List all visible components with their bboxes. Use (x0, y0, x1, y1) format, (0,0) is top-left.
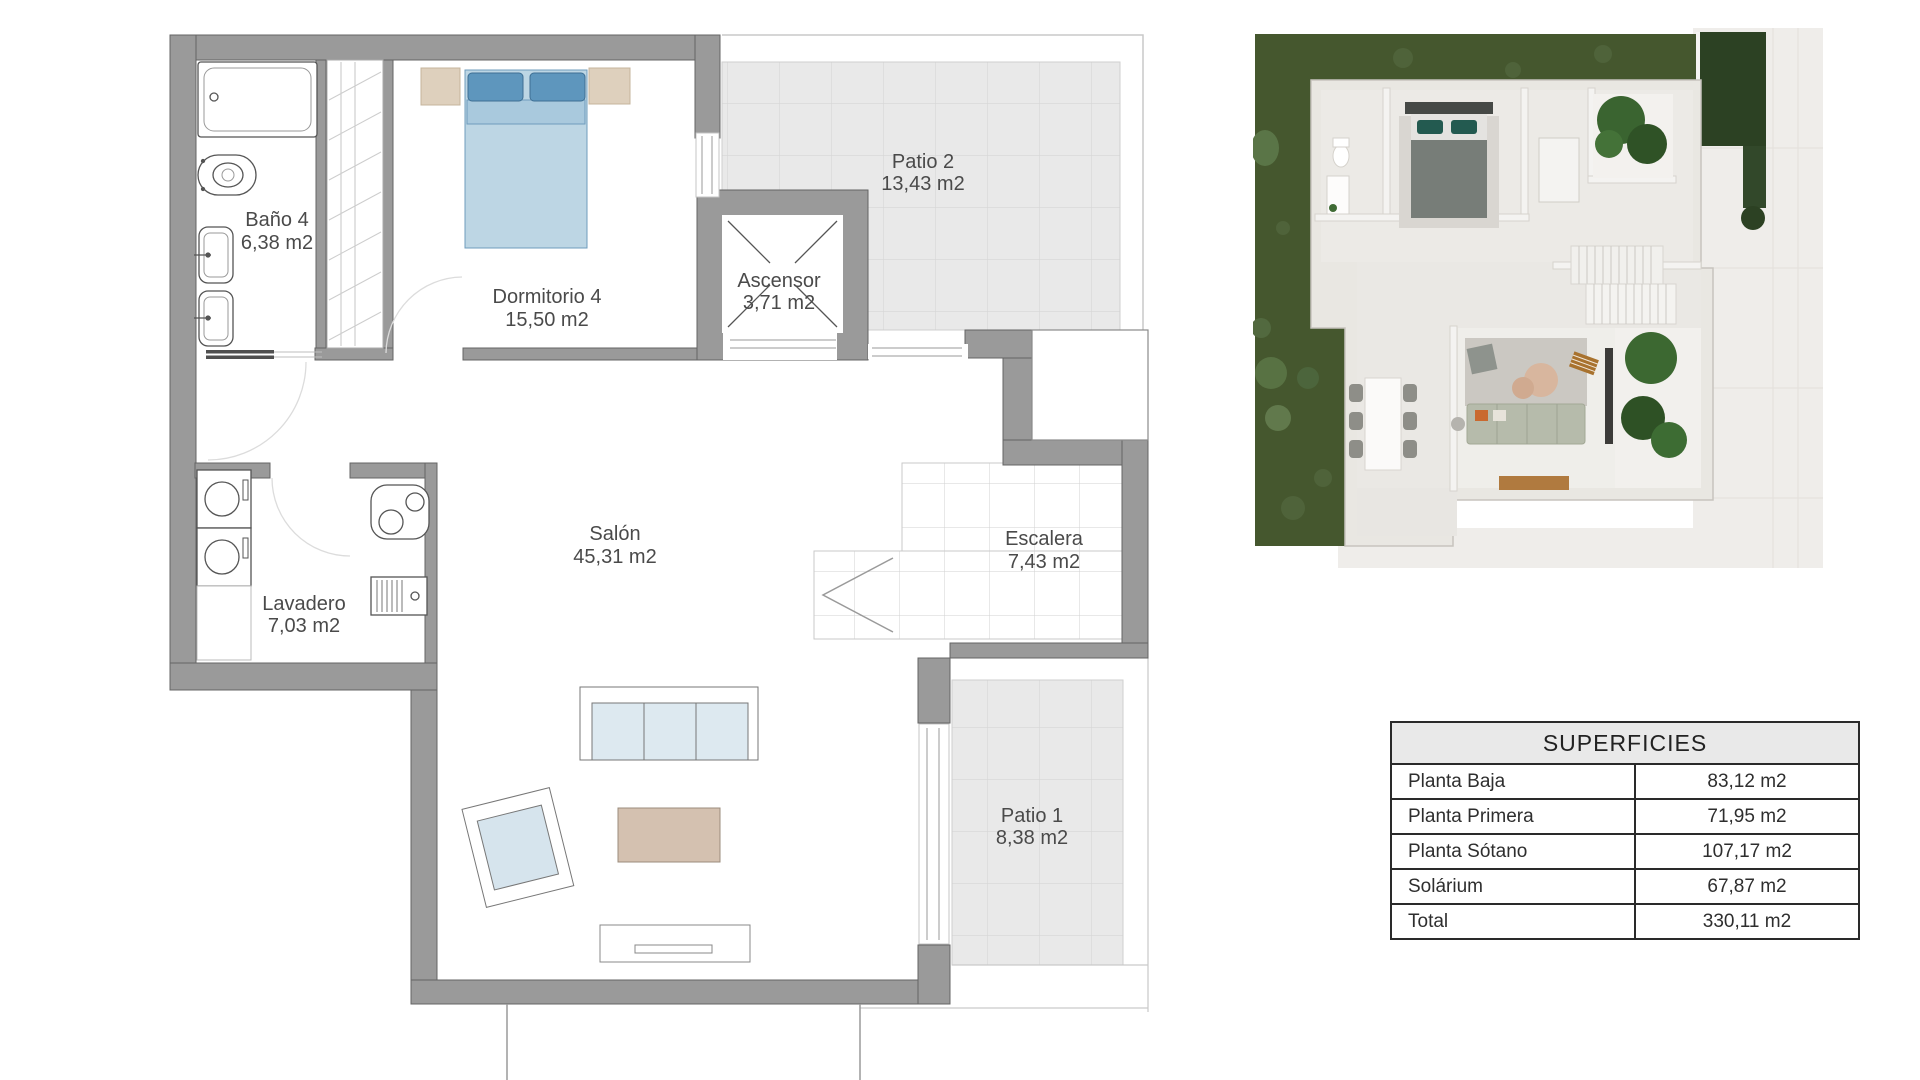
room-area-salon: 45,31 m2 (573, 546, 656, 568)
row-value: 330,11 m2 (1635, 904, 1859, 939)
room-label-escalera: Escalera (1005, 528, 1084, 550)
plot-boundary-lines (507, 1004, 860, 1080)
tv-stand (600, 925, 750, 962)
table-row: Planta Sótano 107,17 m2 (1391, 834, 1859, 869)
row-label: Planta Sótano (1391, 834, 1635, 869)
stairs-3d (1571, 246, 1676, 324)
room-area-ascensor: 3,71 m2 (743, 292, 815, 314)
row-label: Planta Primera (1391, 799, 1635, 834)
room-area-escalera: 7,43 m2 (1008, 551, 1080, 573)
room-label-ascensor: Ascensor (737, 270, 821, 292)
sink (194, 291, 233, 346)
counter (197, 586, 251, 660)
table-row: Planta Baja 83,12 m2 (1391, 764, 1859, 799)
row-value: 71,95 m2 (1635, 799, 1859, 834)
surfaces-table-title: SUPERFICIES (1391, 722, 1859, 764)
laundry-sink (371, 577, 427, 615)
nightstand (589, 68, 630, 104)
dining-set (1349, 378, 1417, 470)
room-area-dormitorio: 15,50 m2 (505, 309, 588, 331)
row-label: Total (1391, 904, 1635, 939)
bathroom-fixtures (194, 62, 317, 346)
washing-machine (197, 470, 251, 528)
room-label-salon: Salón (589, 523, 640, 545)
table-row: Total 330,11 m2 (1391, 904, 1859, 939)
washing-machine (197, 528, 251, 586)
nightstand (421, 68, 460, 105)
room-label-patio1: Patio 1 (1001, 805, 1063, 827)
bathtub (198, 62, 317, 137)
toilet (198, 155, 256, 195)
row-label: Planta Baja (1391, 764, 1635, 799)
row-value: 107,17 m2 (1635, 834, 1859, 869)
room-label-patio2: Patio 2 (892, 151, 954, 173)
sink (194, 227, 233, 283)
patio-plants-top (1593, 94, 1673, 178)
terrace-plants (1615, 328, 1701, 488)
armchair (462, 788, 574, 908)
room-area-bano: 6,38 m2 (241, 232, 313, 254)
bed (465, 70, 587, 248)
room-area-patio2: 13,43 m2 (881, 173, 964, 195)
room-label-lavadero: Lavadero (262, 593, 345, 615)
room-label-dormitorio: Dormitorio 4 (493, 286, 602, 308)
coffee-table (618, 808, 720, 862)
room-area-lavadero: 7,03 m2 (268, 615, 340, 637)
surfaces-table: SUPERFICIES Planta Baja 83,12 m2 Planta … (1390, 721, 1860, 940)
sofa (580, 687, 758, 760)
room-label-bano: Baño 4 (245, 209, 308, 231)
row-value: 83,12 m2 (1635, 764, 1859, 799)
table-row: Planta Primera 71,95 m2 (1391, 799, 1859, 834)
floor-plan-2d: Baño 4 6,38 m2 Dormitorio 4 15,50 m2 Asc… (0, 0, 1250, 1080)
row-value: 67,87 m2 (1635, 869, 1859, 904)
row-label: Solárium (1391, 869, 1635, 904)
boiler (371, 485, 429, 539)
room-area-patio1: 8,38 m2 (996, 827, 1068, 849)
render-3d (1253, 28, 1823, 568)
wardrobe (327, 60, 383, 348)
table-row: Solárium 67,87 m2 (1391, 869, 1859, 904)
page: Baño 4 6,38 m2 Dormitorio 4 15,50 m2 Asc… (0, 0, 1920, 1080)
open-void (1032, 330, 1148, 440)
